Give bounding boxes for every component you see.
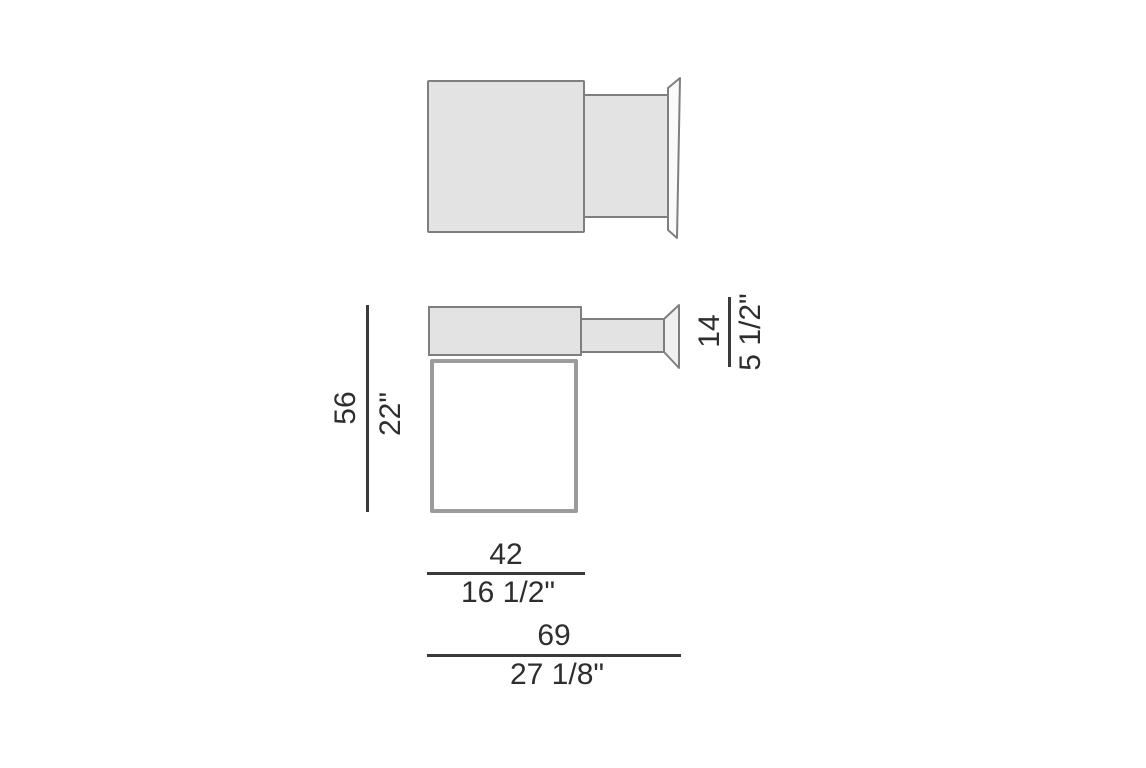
clamp-dimension-inch-label: 5 1/2" <box>736 293 766 370</box>
overall-width-cm-label: 69 <box>537 621 570 651</box>
height-dimension-line <box>366 305 369 512</box>
overall-width-dimension-line <box>427 654 681 657</box>
front-view-top-band <box>428 306 582 356</box>
top-view-clamp-plate <box>662 72 686 244</box>
top-view-tabletop <box>427 80 585 233</box>
clamp-dimension-cm-label: 14 <box>695 314 725 347</box>
diagram-canvas: 56 22" 14 5 1/2" 42 16 1/2" 69 27 1/8" <box>0 0 1146 768</box>
front-view-clamp-pad <box>660 298 686 374</box>
overall-width-inch-label: 27 1/8" <box>510 660 604 690</box>
tabletop-width-inch-label: 16 1/2" <box>461 578 555 608</box>
height-dimension-inch-label: 22" <box>376 392 406 436</box>
front-view-base-frame <box>430 359 578 513</box>
top-view-clamp-arm <box>585 94 668 218</box>
clamp-dimension-bar <box>728 297 731 367</box>
tabletop-width-cm-label: 42 <box>489 540 522 570</box>
height-dimension-cm-label: 56 <box>331 391 361 424</box>
front-view-clamp-arm <box>582 318 664 353</box>
tabletop-width-dimension-line <box>427 572 585 575</box>
